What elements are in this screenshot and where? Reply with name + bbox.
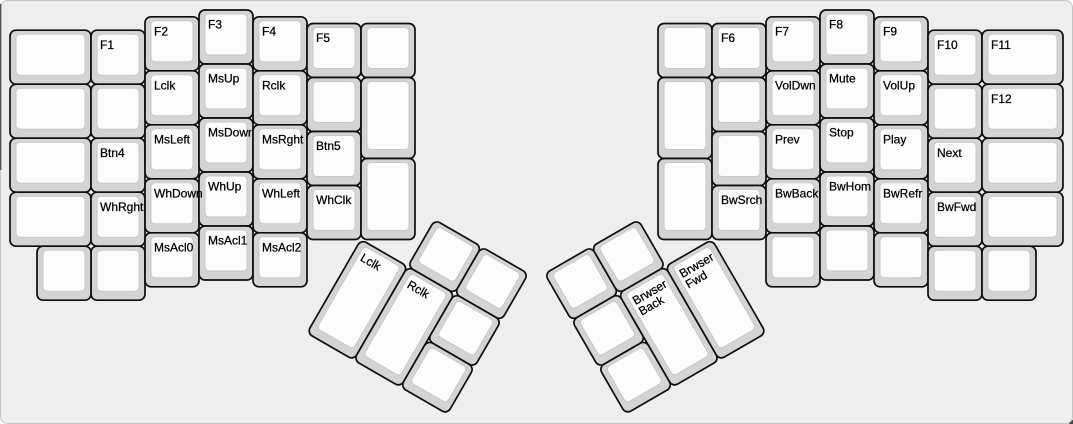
svg-text:VolDwn: VolDwn [775, 78, 816, 92]
svg-text:BwHom: BwHom [829, 180, 871, 194]
svg-text:Next: Next [937, 146, 962, 160]
svg-text:Lclk: Lclk [154, 78, 176, 92]
svg-text:F10: F10 [937, 38, 958, 52]
svg-text:Prev: Prev [775, 132, 800, 146]
svg-text:Btn4: Btn4 [100, 146, 125, 160]
svg-text:Stop: Stop [829, 126, 854, 140]
svg-text:MsRght: MsRght [262, 132, 304, 146]
svg-text:MsAcl1: MsAcl1 [208, 234, 248, 248]
svg-text:Play: Play [883, 132, 906, 146]
svg-text:Mute: Mute [829, 72, 856, 86]
svg-text:WhRght: WhRght [100, 200, 144, 214]
svg-text:F7: F7 [775, 24, 789, 38]
svg-text:VolUp: VolUp [883, 78, 915, 92]
svg-text:Rclk: Rclk [262, 78, 286, 92]
svg-text:MsLeft: MsLeft [154, 132, 191, 146]
svg-text:MsDown: MsDown [208, 126, 255, 140]
svg-text:F12: F12 [991, 92, 1012, 106]
svg-text:WhDown: WhDown [154, 186, 203, 200]
svg-text:F8: F8 [829, 18, 843, 32]
svg-text:F1: F1 [100, 38, 114, 52]
svg-text:WhLeft: WhLeft [262, 186, 301, 200]
svg-text:F4: F4 [262, 24, 276, 38]
svg-text:F11: F11 [991, 38, 1011, 52]
svg-text:Btn5: Btn5 [316, 139, 341, 153]
svg-text:F5: F5 [316, 31, 330, 45]
svg-text:BwSrch: BwSrch [721, 193, 762, 207]
svg-text:F2: F2 [154, 24, 168, 38]
svg-text:WhUp: WhUp [208, 180, 242, 194]
svg-text:F3: F3 [208, 18, 222, 32]
svg-text:F6: F6 [721, 31, 735, 45]
svg-text:BwBack: BwBack [775, 186, 819, 200]
svg-text:F9: F9 [883, 24, 897, 38]
svg-text:BwRefr: BwRefr [883, 186, 922, 200]
svg-text:MsAcl2: MsAcl2 [262, 240, 302, 254]
svg-text:BwFwd: BwFwd [937, 200, 976, 214]
svg-text:WhClk: WhClk [316, 193, 352, 207]
svg-text:MsUp: MsUp [208, 72, 240, 86]
svg-text:MsAcl0: MsAcl0 [154, 240, 194, 254]
